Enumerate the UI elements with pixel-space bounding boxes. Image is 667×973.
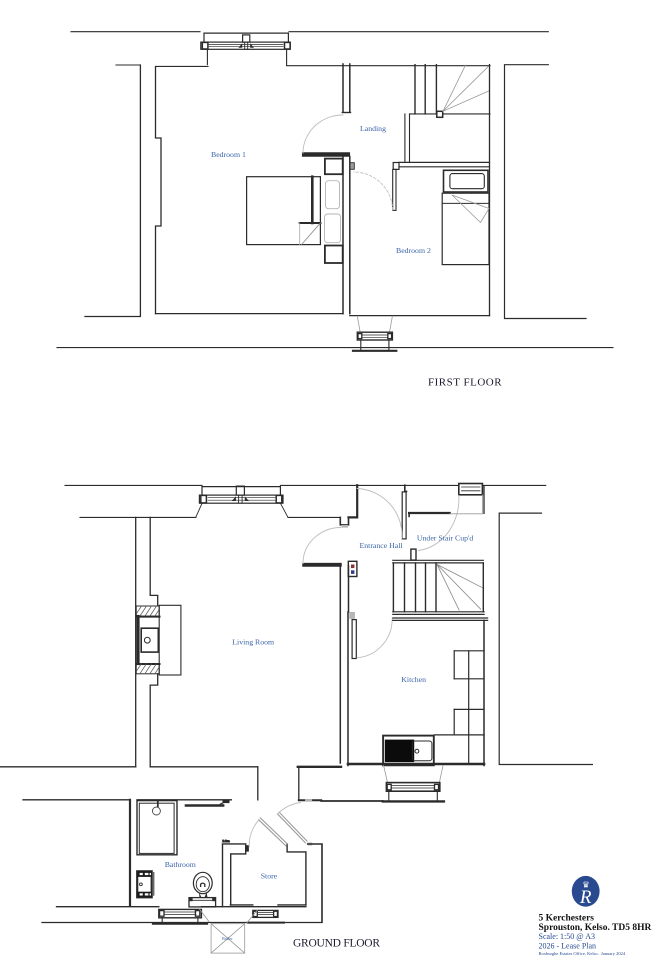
svg-text:2026 - Lease Plan: 2026 - Lease Plan [539, 942, 597, 951]
svg-text:GROUND FLOOR: GROUND FLOOR [293, 938, 380, 950]
svg-text:Bedroom 1: Bedroom 1 [211, 150, 246, 159]
svg-text:Landing: Landing [360, 124, 386, 133]
svg-text:Entrance Hall: Entrance Hall [360, 541, 404, 550]
svg-text:Under Stair Cup'd: Under Stair Cup'd [417, 534, 474, 543]
svg-text:R: R [579, 887, 592, 908]
svg-text:Kitchen: Kitchen [401, 675, 426, 684]
svg-text:Bathroom: Bathroom [165, 860, 196, 869]
svg-text:5 Kerchesters: 5 Kerchesters [539, 914, 595, 924]
svg-text:Boiler: Boiler [222, 936, 233, 941]
svg-text:♛: ♛ [582, 880, 590, 890]
svg-text:Living Room: Living Room [232, 638, 274, 647]
svg-text:Scale: 1:50 @ A3: Scale: 1:50 @ A3 [539, 932, 595, 941]
svg-text:FIRST FLOOR: FIRST FLOOR [428, 377, 502, 389]
svg-text:Store: Store [261, 872, 278, 881]
svg-text:Roxburghe Estates Office, Kels: Roxburghe Estates Office, Kelso. January… [539, 951, 626, 957]
svg-text:2.8m: 2.8m [223, 839, 230, 843]
svg-text:Bedroom 2: Bedroom 2 [396, 246, 431, 255]
